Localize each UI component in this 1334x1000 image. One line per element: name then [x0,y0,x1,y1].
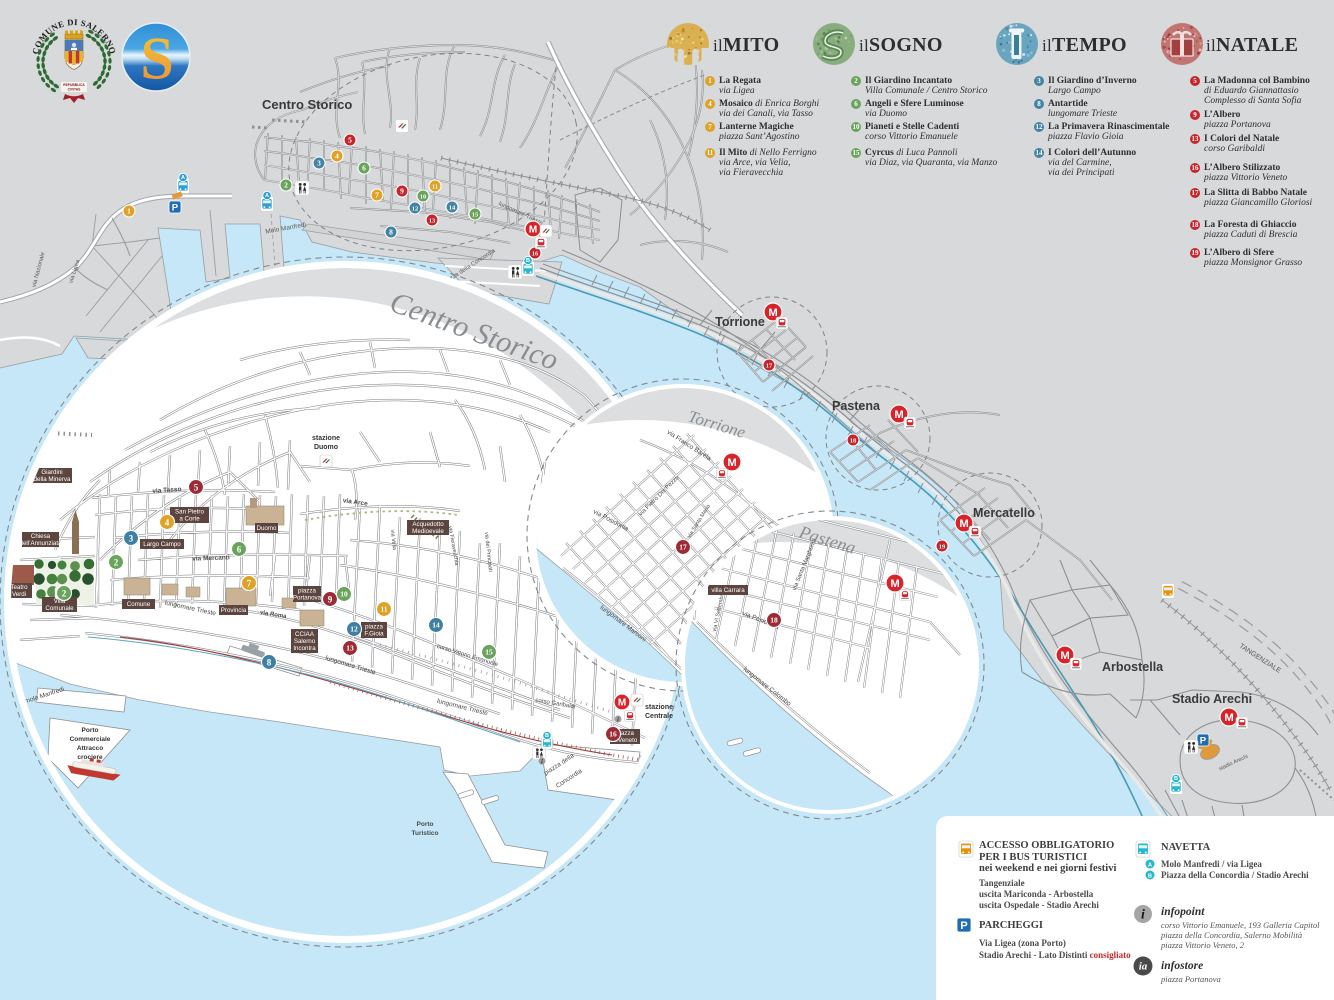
svg-text:2: 2 [114,557,119,567]
svg-text:7: 7 [247,578,252,588]
svg-text:11: 11 [380,605,387,614]
svg-text:8: 8 [389,228,393,237]
svg-text:3: 3 [317,159,321,168]
svg-text:3: 3 [129,533,134,543]
svg-text:2: 2 [62,588,67,598]
svg-text:15: 15 [472,211,479,218]
svg-text:4: 4 [335,152,339,161]
svg-text:villa Carrara: villa Carrara [711,587,745,594]
svg-text:17: 17 [679,543,687,552]
svg-text:B: B [526,258,530,264]
svg-text:crociere: crociere [77,754,103,761]
svg-text:REPUBBLICA: REPUBBLICA [63,83,85,87]
svg-text:A: A [181,175,185,181]
svg-text:1: 1 [127,207,131,216]
svg-text:B: B [1148,874,1152,880]
svg-text:CCIAA: CCIAA [295,631,315,638]
svg-text:stazione: stazione [312,435,340,442]
svg-text:15: 15 [485,648,493,657]
svg-text:17: 17 [766,362,773,369]
svg-text:Turistico: Turistico [412,830,439,837]
svg-text:18: 18 [850,437,857,444]
svg-text:stazione: stazione [645,704,673,711]
svg-text:Verdi: Verdi [12,591,26,598]
svg-text:16: 16 [609,730,617,739]
svg-text:10: 10 [340,590,348,599]
svg-text:14: 14 [432,621,440,630]
svg-text:Torrione: Torrione [715,315,765,329]
svg-text:5: 5 [194,482,199,492]
svg-text:M: M [1224,712,1233,724]
svg-text:M: M [959,518,968,530]
svg-text:Pastena: Pastena [832,399,881,413]
svg-text:Acquedotto: Acquedotto [412,521,444,528]
svg-text:Incontra: Incontra [293,645,316,652]
svg-text:11: 11 [432,183,438,190]
svg-text:B: B [1174,776,1178,782]
svg-text:12: 12 [350,625,358,634]
svg-text:Centrale: Centrale [645,713,673,720]
svg-text:M: M [1060,650,1069,662]
svg-text:P: P [172,202,179,213]
svg-text:9: 9 [400,187,404,196]
svg-text:Stadio Arechi: Stadio Arechi [1172,692,1252,706]
svg-text:Duomo: Duomo [314,444,338,451]
svg-text:Medioevale: Medioevale [412,528,444,535]
svg-text:Arbostella: Arbostella [1102,660,1164,674]
svg-text:6: 6 [362,164,366,173]
svg-text:19: 19 [939,543,946,550]
svg-text:Attracco: Attracco [77,745,103,752]
svg-text:Teatro: Teatro [10,584,28,591]
svg-text:A: A [265,193,269,199]
svg-text:Centro Storico: Centro Storico [262,97,352,112]
svg-text:M: M [727,457,736,469]
svg-text:5: 5 [348,136,352,145]
svg-text:6: 6 [237,544,242,554]
svg-text:B: B [545,733,549,739]
svg-text:Comunale: Comunale [45,605,74,612]
svg-text:M: M [894,409,903,421]
svg-text:Provincia: Provincia [221,607,247,614]
svg-text:10: 10 [420,193,427,200]
svg-text:piazza: piazza [298,588,316,595]
svg-text:7: 7 [375,191,379,200]
svg-text:13: 13 [346,644,354,653]
svg-text:Chiesa: Chiesa [31,533,51,540]
svg-text:Giardini: Giardini [41,469,62,476]
svg-text:13: 13 [429,217,436,224]
svg-text:Mercatello: Mercatello [973,506,1035,520]
svg-text:P: P [1200,735,1207,746]
svg-text:Duomo: Duomo [257,525,278,532]
svg-text:via Mercanti: via Mercanti [192,554,230,562]
svg-text:P: P [960,920,968,932]
svg-text:San Pietro: San Pietro [175,509,204,516]
svg-text:A: A [1148,863,1152,869]
svg-text:9: 9 [328,594,333,604]
svg-text:M: M [529,224,537,235]
svg-text:M: M [890,578,899,590]
svg-text:i: i [1141,908,1145,923]
svg-text:M: M [768,307,777,319]
svg-text:piazza: piazza [365,624,383,631]
svg-text:dell’Annunziata: dell’Annunziata [20,540,63,547]
svg-text:a Corte: a Corte [179,516,200,523]
svg-text:Salerno: Salerno [294,638,316,645]
svg-text:F.Gioia: F.Gioia [364,631,384,638]
svg-text:della Minerva: della Minerva [34,476,71,483]
svg-text:8: 8 [267,657,272,667]
svg-text:14: 14 [449,204,456,211]
svg-text:CIVITAS: CIVITAS [68,88,82,92]
svg-text:4: 4 [165,517,170,527]
svg-text:12: 12 [412,205,419,212]
svg-text:2: 2 [284,181,288,190]
svg-text:18: 18 [770,616,778,625]
svg-text:Porto: Porto [417,821,434,828]
svg-text:Commerciale: Commerciale [70,736,111,743]
svg-text:S: S [140,26,173,92]
svg-text:Largo Campo: Largo Campo [143,541,181,548]
svg-text:Portanova: Portanova [293,595,322,602]
svg-text:Comune: Comune [127,601,151,608]
svg-text:16: 16 [532,250,539,257]
svg-text:M: M [618,697,626,708]
svg-text:Porto: Porto [82,727,99,734]
svg-text:ia: ia [1139,961,1148,973]
